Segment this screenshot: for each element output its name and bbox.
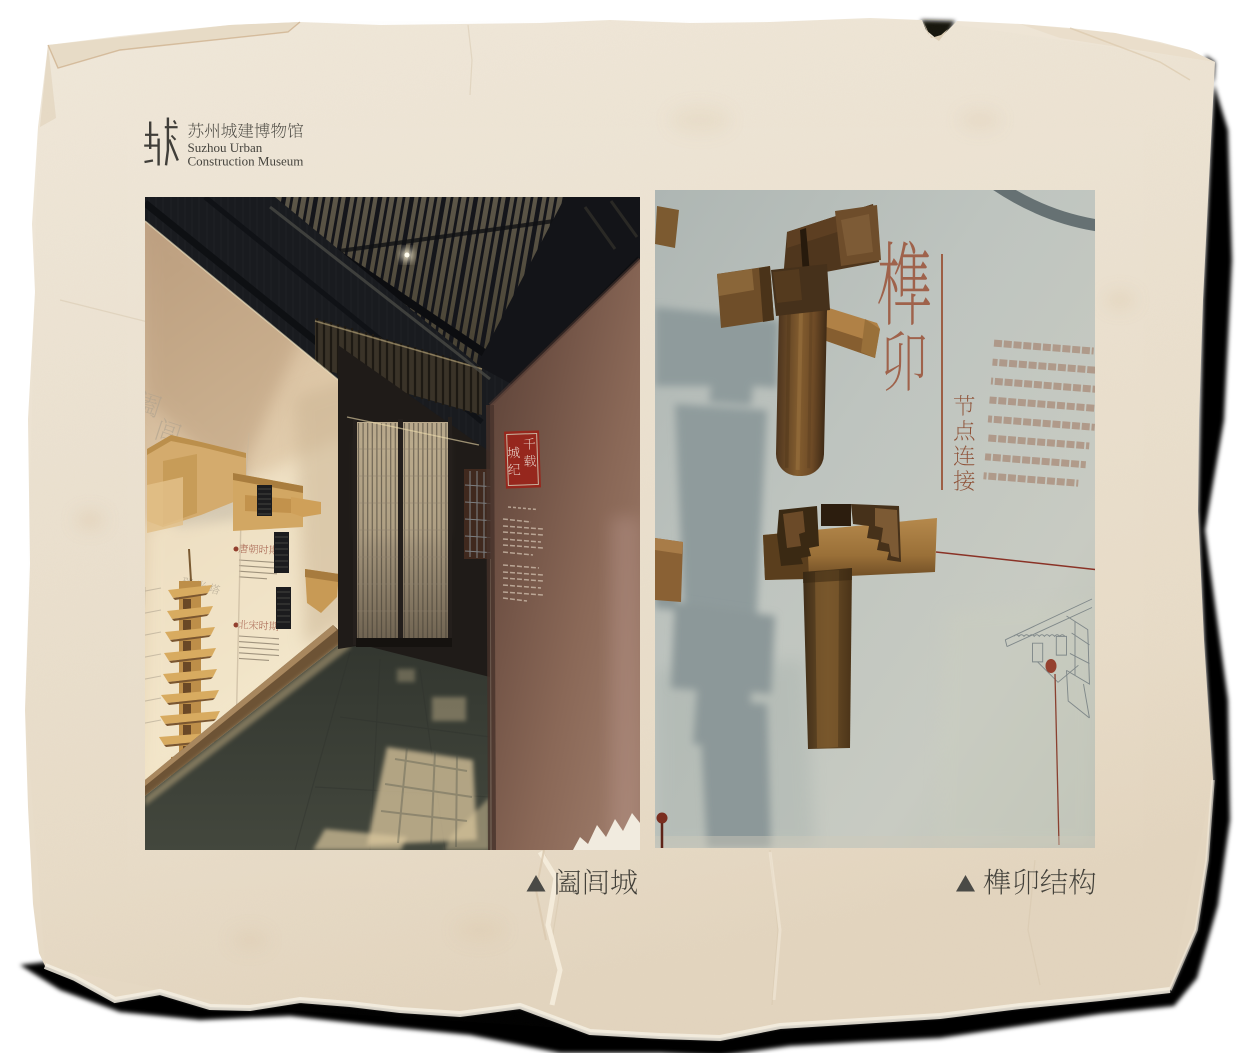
svg-text:Construction Museum: Construction Museum <box>188 154 304 169</box>
